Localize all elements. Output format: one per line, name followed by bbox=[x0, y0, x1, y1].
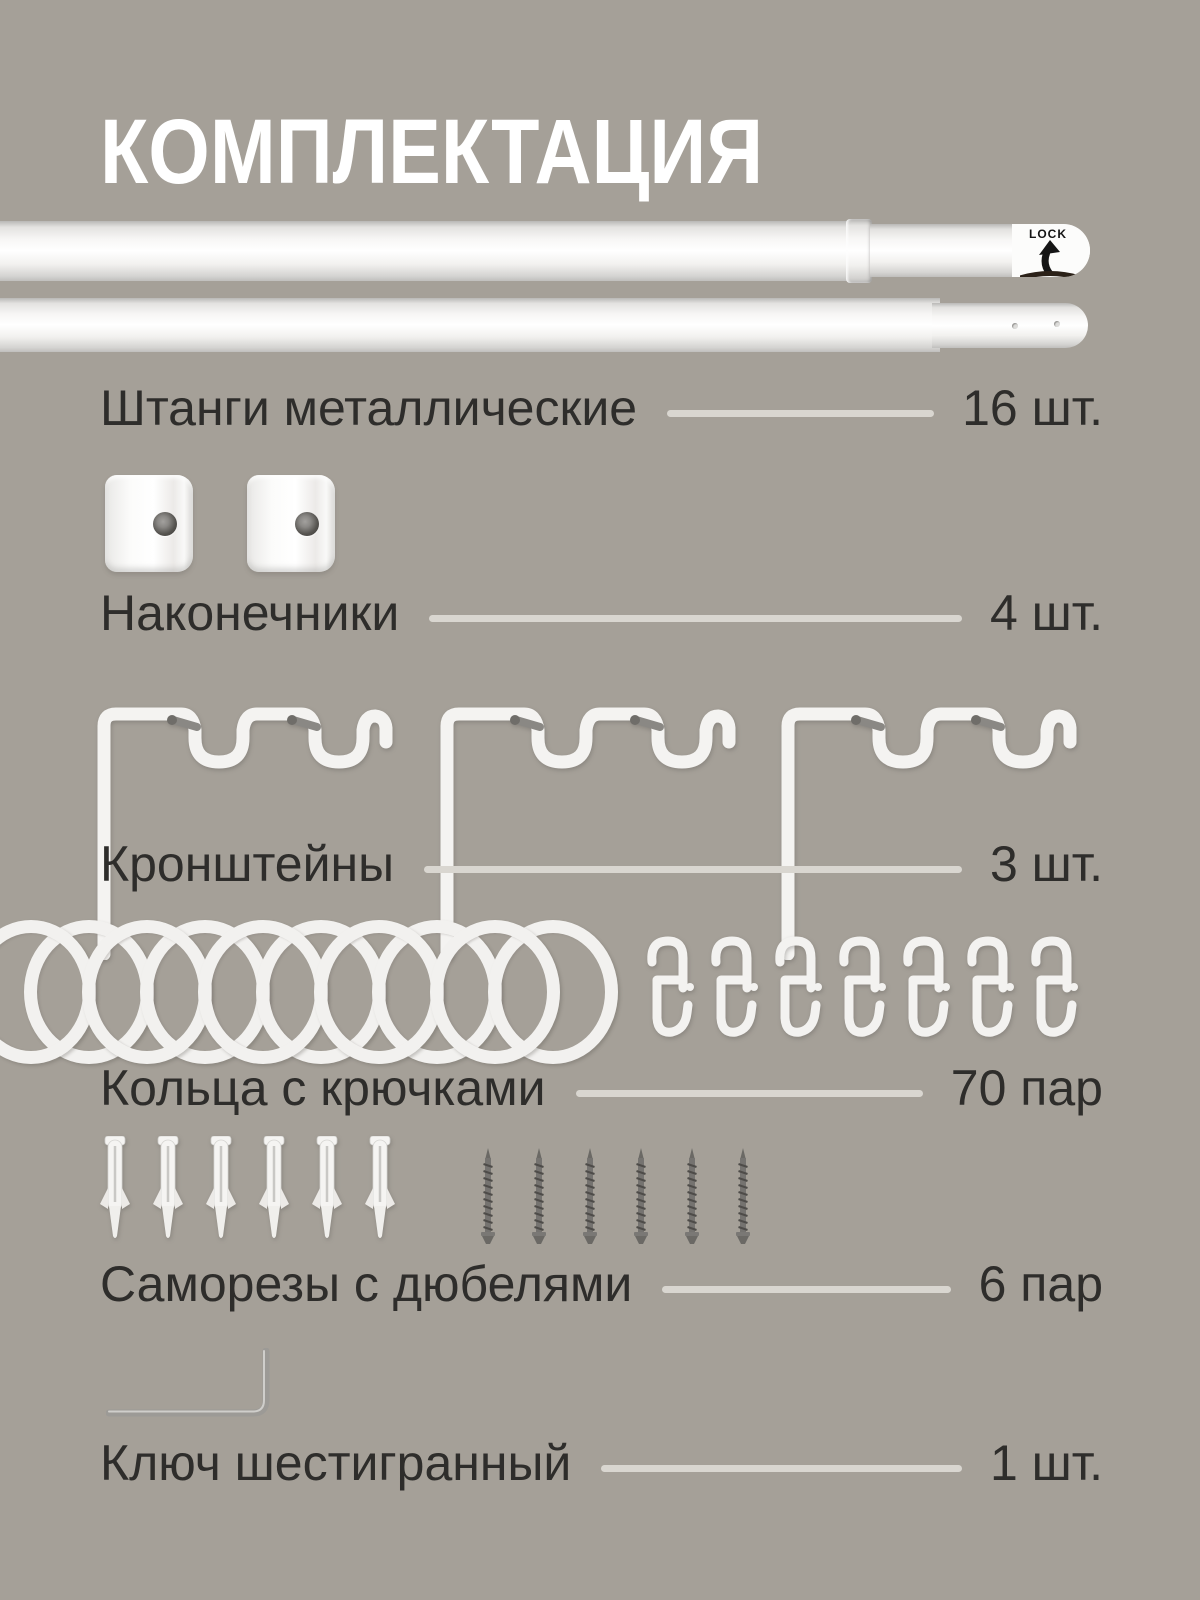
ring-icon bbox=[314, 920, 444, 1064]
finial-image bbox=[247, 475, 335, 572]
item-row-rods: Штанги металлические 16 шт. bbox=[100, 382, 1103, 434]
lock-label: LOCK bbox=[1012, 227, 1084, 241]
item-label: Кронштейны bbox=[100, 838, 394, 890]
hex-key-icon bbox=[106, 1348, 276, 1420]
ring-icon bbox=[198, 920, 328, 1064]
hook-icon bbox=[962, 932, 1020, 1038]
screw-icon bbox=[529, 1148, 549, 1246]
item-label: Кольца с крючками bbox=[100, 1062, 546, 1114]
dowel-icon bbox=[257, 1136, 291, 1240]
hook-icon bbox=[834, 932, 892, 1038]
item-row-finials: Наконечники 4 шт. bbox=[100, 587, 1103, 639]
dowel-icon bbox=[98, 1136, 132, 1240]
screw-icon bbox=[478, 1148, 498, 1246]
hook-icon bbox=[1026, 932, 1084, 1038]
finial-image bbox=[105, 475, 193, 572]
rod2-thin-tube bbox=[932, 303, 1088, 348]
hook-icon bbox=[706, 932, 764, 1038]
item-value: 16 шт. bbox=[962, 382, 1103, 434]
screw-icon bbox=[733, 1148, 753, 1246]
item-row-hexkey: Ключ шестигранный 1 шт. bbox=[100, 1437, 1103, 1489]
dowel-icon bbox=[363, 1136, 397, 1240]
item-label: Штанги металлические bbox=[100, 382, 637, 434]
rod2-main-tube bbox=[0, 298, 940, 352]
item-value: 1 шт. bbox=[990, 1437, 1103, 1489]
hook-icon bbox=[898, 932, 956, 1038]
item-value: 6 пар bbox=[979, 1258, 1103, 1310]
rod-lock-band: LOCK bbox=[1012, 224, 1090, 277]
hook-icon bbox=[642, 932, 700, 1038]
leader-line bbox=[576, 1090, 923, 1097]
leader-line bbox=[429, 615, 962, 622]
item-label: Ключ шестигранный bbox=[100, 1437, 571, 1489]
rod2-hole bbox=[1012, 323, 1018, 329]
item-value: 3 шт. bbox=[990, 838, 1103, 890]
set-screw-hole bbox=[153, 512, 177, 536]
screw-icon bbox=[631, 1148, 651, 1246]
page-title: КОМПЛЕКТАЦИЯ bbox=[100, 106, 763, 198]
hook-icon bbox=[770, 932, 828, 1038]
set-screw-hole bbox=[295, 512, 319, 536]
item-row-rings: Кольца с крючками 70 пар bbox=[100, 1062, 1103, 1114]
leader-line bbox=[424, 866, 962, 873]
leader-line bbox=[601, 1465, 962, 1472]
infographic-package-contents: КОМПЛЕКТАЦИЯ LOCK Штанги металлические 1… bbox=[0, 0, 1200, 1600]
rod-main-tube bbox=[0, 221, 852, 281]
item-label: Саморезы с дюбелями bbox=[100, 1258, 632, 1310]
item-row-screws: Саморезы с дюбелями 6 пар bbox=[100, 1258, 1103, 1310]
screw-icon bbox=[580, 1148, 600, 1246]
item-label: Наконечники bbox=[100, 587, 399, 639]
ring-icon bbox=[430, 920, 560, 1064]
dowel-icon bbox=[310, 1136, 344, 1240]
rod-joint-collar bbox=[846, 219, 872, 283]
dowel-icon bbox=[151, 1136, 185, 1240]
bracket-icon bbox=[777, 690, 1107, 960]
ring-icon bbox=[82, 920, 212, 1064]
leader-line bbox=[667, 410, 934, 417]
item-value: 70 пар bbox=[951, 1062, 1103, 1114]
screw-icon bbox=[682, 1148, 702, 1246]
rod2-hole bbox=[1054, 321, 1060, 327]
item-value: 4 шт. bbox=[990, 587, 1103, 639]
lock-dark-stripe bbox=[1020, 268, 1080, 277]
item-row-brackets: Кронштейны 3 шт. bbox=[100, 838, 1103, 890]
dowel-icon bbox=[204, 1136, 238, 1240]
bracket-icon bbox=[436, 690, 766, 960]
leader-line bbox=[662, 1286, 950, 1293]
